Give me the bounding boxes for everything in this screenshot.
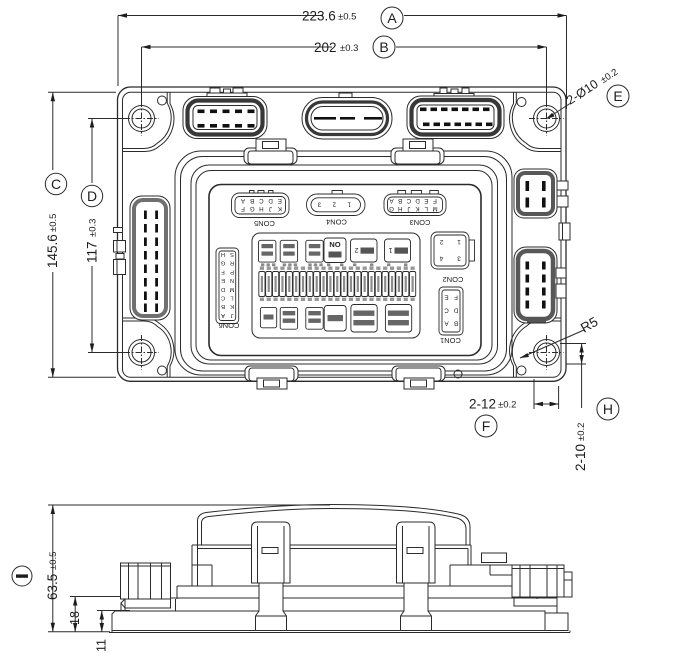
svg-text:2-12: 2-12 bbox=[469, 397, 496, 412]
svg-text:E: E bbox=[424, 197, 428, 204]
svg-text:CON5: CON5 bbox=[254, 219, 275, 228]
svg-text:2-10: 2-10 bbox=[573, 444, 588, 471]
svg-text:18: 18 bbox=[68, 611, 82, 625]
svg-text:H: H bbox=[398, 205, 402, 212]
svg-text:±0.5: ±0.5 bbox=[338, 12, 356, 23]
svg-text:B: B bbox=[379, 39, 388, 55]
svg-text:G: G bbox=[220, 260, 225, 266]
svg-text:CON3: CON3 bbox=[410, 218, 431, 227]
svg-text:CON1: CON1 bbox=[440, 336, 461, 345]
svg-text:N: N bbox=[230, 277, 234, 283]
svg-text:P: P bbox=[230, 268, 234, 274]
svg-text:D: D bbox=[221, 286, 225, 292]
svg-text:M: M bbox=[229, 286, 234, 292]
svg-text:E: E bbox=[221, 277, 225, 283]
svg-text:B: B bbox=[398, 197, 402, 204]
svg-text:F: F bbox=[221, 268, 225, 274]
svg-text:±0.5: ±0.5 bbox=[48, 552, 59, 570]
svg-text:B: B bbox=[221, 303, 225, 309]
svg-text:D: D bbox=[453, 306, 458, 313]
svg-text:F: F bbox=[482, 418, 491, 434]
svg-text:A: A bbox=[221, 312, 225, 318]
svg-text:H: H bbox=[603, 401, 613, 417]
svg-text:F: F bbox=[241, 205, 245, 212]
svg-text:G: G bbox=[389, 205, 394, 212]
svg-text:ON: ON bbox=[329, 240, 340, 249]
svg-text:117: 117 bbox=[85, 241, 100, 263]
svg-text:2: 2 bbox=[354, 246, 358, 253]
svg-text:G: G bbox=[250, 205, 255, 212]
svg-text:D: D bbox=[268, 197, 273, 204]
svg-text:C: C bbox=[444, 306, 449, 313]
svg-text:1: 1 bbox=[388, 246, 392, 253]
svg-text:±0.5: ±0.5 bbox=[48, 214, 59, 232]
svg-text:J: J bbox=[230, 312, 233, 318]
svg-text:M: M bbox=[432, 205, 437, 212]
svg-text:11: 11 bbox=[95, 639, 109, 652]
svg-text:4: 4 bbox=[439, 255, 443, 262]
svg-text:C: C bbox=[259, 197, 264, 204]
svg-text:H: H bbox=[221, 251, 225, 257]
svg-text:3: 3 bbox=[317, 201, 321, 208]
svg-text:±0.2: ±0.2 bbox=[498, 400, 516, 411]
svg-text:±0.3: ±0.3 bbox=[88, 219, 99, 237]
svg-text:A: A bbox=[387, 10, 397, 26]
svg-text:±0.2: ±0.2 bbox=[576, 423, 587, 441]
svg-text:D: D bbox=[415, 197, 420, 204]
svg-text:CON4: CON4 bbox=[326, 218, 347, 227]
svg-text:D: D bbox=[87, 188, 97, 204]
svg-text:B: B bbox=[250, 197, 254, 204]
svg-text:3: 3 bbox=[457, 255, 461, 262]
svg-text:202: 202 bbox=[314, 40, 337, 55]
svg-text:R: R bbox=[230, 260, 234, 266]
svg-text:J: J bbox=[407, 205, 410, 212]
svg-text:145.6: 145.6 bbox=[45, 234, 60, 268]
svg-text:C: C bbox=[406, 197, 411, 204]
svg-text:C: C bbox=[221, 295, 225, 301]
svg-text:63.5: 63.5 bbox=[45, 574, 60, 600]
svg-text:J: J bbox=[269, 205, 272, 212]
svg-text:S: S bbox=[230, 251, 234, 257]
svg-text:F: F bbox=[433, 197, 437, 204]
svg-text:1: 1 bbox=[457, 238, 461, 245]
svg-text:B: B bbox=[454, 319, 458, 326]
svg-text:E: E bbox=[278, 197, 282, 204]
svg-text:E: E bbox=[444, 293, 448, 300]
svg-text:2: 2 bbox=[439, 238, 443, 245]
svg-text:E: E bbox=[613, 88, 622, 104]
svg-text:1: 1 bbox=[347, 201, 351, 208]
svg-text:2: 2 bbox=[332, 201, 336, 208]
svg-text:K: K bbox=[230, 303, 234, 309]
svg-text:223.6: 223.6 bbox=[302, 9, 336, 24]
svg-text:C: C bbox=[51, 176, 61, 192]
svg-text:CON2: CON2 bbox=[443, 275, 464, 284]
svg-text:CON6: CON6 bbox=[219, 321, 240, 330]
svg-text:F: F bbox=[454, 293, 458, 300]
svg-text:±0.3: ±0.3 bbox=[340, 43, 358, 54]
svg-text:L: L bbox=[424, 205, 428, 212]
svg-text:H: H bbox=[259, 205, 263, 212]
